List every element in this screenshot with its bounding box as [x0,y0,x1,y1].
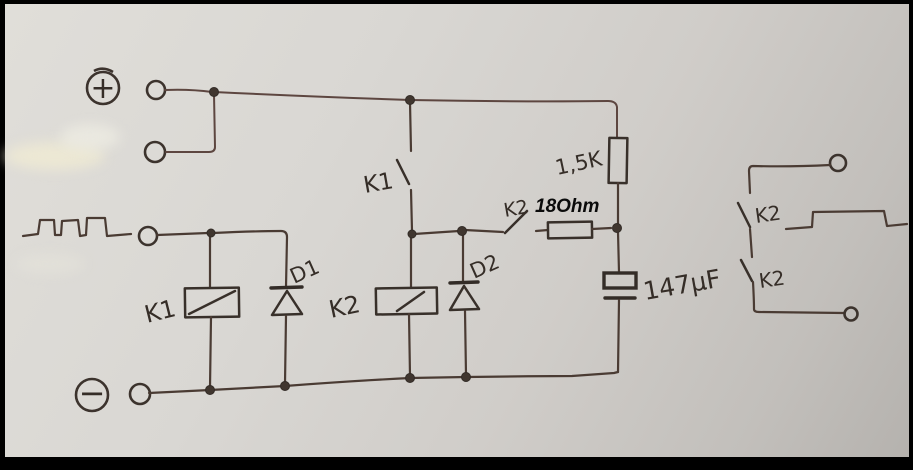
r1k5-body [609,138,628,183]
wire-k2-contact-fixed [465,230,503,232]
d2-label: D2 [466,250,503,284]
d1-diode: D1 [271,255,323,384]
wire-cap-top [618,232,619,272]
wire-input-to-d1 [213,231,287,287]
wire-k1-contact-upper [410,102,411,151]
negative-supply-symbol: − [76,374,108,412]
junction-dot [207,229,215,237]
d2-cathode-bar [450,282,478,283]
cap-plate-top [604,273,636,288]
r18-lead-left [536,230,548,231]
out-contact-bottom-lever [741,260,752,281]
d2-diode: D2 [450,233,503,375]
k2-coil-box [376,287,437,314]
d1-label: D1 [286,255,323,289]
r18-body [548,222,592,239]
output-contact-circuit: K2 K2 [738,155,907,321]
k1-coil-label: K1 [142,294,179,329]
input-waveform-icon [23,218,131,236]
terminal-plus-2 [145,142,165,162]
wire-plus2-link [166,94,215,152]
wire-bottom-rail [149,372,618,393]
circuit-schematic: + − K1 K1 [0,0,913,470]
r18-lead-right [592,228,611,229]
terminal-output-top [830,155,846,171]
d2-triangle [450,286,479,310]
k2-contact-label: K2 [502,196,530,222]
k2-relay-coil: K2 [326,237,437,376]
terminal-minus [130,384,150,404]
k1-relay-contact: K1 [362,102,412,231]
wire-plus-terminal [165,90,212,92]
out-contact-bottom-label: K2 [757,266,786,293]
r1k5-label: 1,5K [553,146,605,180]
k1-contact-lever [397,160,409,184]
k2-coil-diagonal [397,292,424,311]
junction-dot [458,227,467,236]
junction-dot [462,373,471,382]
wire-k2-coil-bottom [409,314,410,376]
cap-label: 147µF [641,264,723,306]
k2-relay-contact: K2 [502,196,530,233]
resistor-18ohm: 18Ohm [535,196,611,238]
wire-mid-link [414,231,459,234]
output-waveform-icon [786,211,907,229]
junction-dot [206,386,215,395]
terminal-output-bottom [845,308,858,321]
k2-coil-label: K2 [326,290,362,324]
k1-contact-label: K1 [362,168,396,199]
junction-dot [408,230,416,238]
k1-relay-coil: K1 [142,235,240,388]
out-contact-top-label: K2 [753,201,782,228]
junction-dots [206,88,622,395]
d1-triangle [272,291,302,315]
wire-top-rail [214,92,617,138]
wire-input [157,233,208,235]
capacitor-147uf: 147µF [604,232,723,372]
junction-dot [613,224,622,233]
wire-d1-bottom [285,316,286,384]
wire-out-mid [750,229,752,257]
k1-coil-diagonal [189,291,235,314]
junction-dot [281,382,290,391]
framed-photo: + − K1 K1 [0,0,913,470]
terminal-signal-input [139,227,157,245]
minus-label: − [79,374,106,412]
wire-cap-bottom [618,300,619,372]
wire-k1-contact-lower [411,190,412,231]
plus-label: + [90,71,115,106]
positive-supply-symbol: + [87,69,119,106]
junction-dot [210,88,219,97]
junction-dot [406,374,415,383]
r18-value-annotation: 18Ohm [535,196,600,217]
terminal-plus-1 [147,81,165,99]
wire-k1-coil-bottom [210,317,211,388]
wire-d2-bottom [465,311,466,375]
out-contact-top-lever [738,203,750,227]
junction-dot [406,96,415,105]
wire-out-top [749,165,830,193]
